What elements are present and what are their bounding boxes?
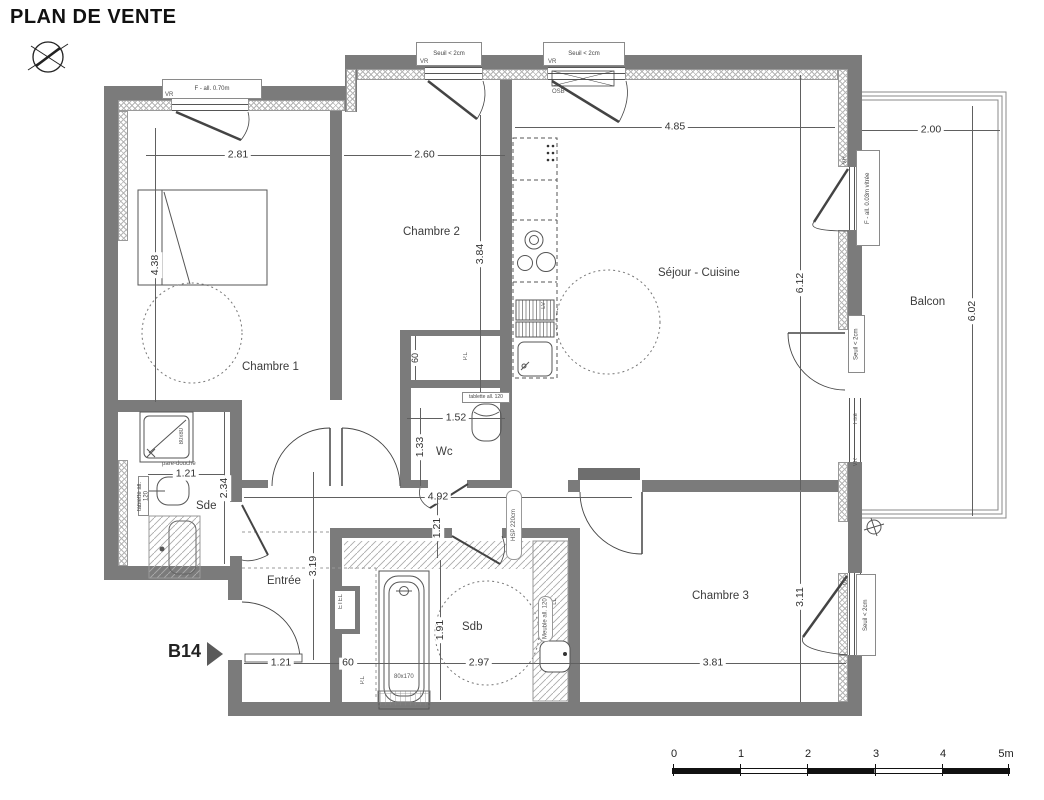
window-tag-vr: VR <box>843 577 849 585</box>
vanity-tag: Meuble all. 120 <box>538 596 553 642</box>
window-tag-vr: VR <box>548 59 556 65</box>
scale-tickmark <box>942 764 943 776</box>
kitchen-units <box>513 138 557 378</box>
window <box>172 98 248 111</box>
room-label-entree: Entrée <box>267 575 301 587</box>
window-tag: F - all. 0.03m vitrée <box>856 150 880 246</box>
dimension: 3.19 <box>313 472 314 660</box>
scale-bar: 0 1 2 3 4 5m <box>672 748 1017 782</box>
shelf-tag: tablette all. 120 <box>138 476 149 516</box>
closet-label: P.L <box>463 352 469 360</box>
dimension: 1.52 <box>407 418 505 419</box>
page-title: PLAN DE VENTE <box>10 6 177 29</box>
insulation-hatch <box>838 462 848 522</box>
dimension: 60 <box>415 336 416 380</box>
dimension: 3.84 <box>480 115 481 392</box>
dimension: 60 <box>318 663 378 664</box>
dimension: 2.34 <box>224 412 225 564</box>
room-label-sde: Sde <box>196 500 216 512</box>
dimension: 2.81 <box>146 155 330 156</box>
clearance-circle <box>142 283 242 383</box>
dimension: 3.81 <box>580 663 846 664</box>
wall <box>400 480 428 488</box>
scale-tickmark <box>740 764 741 776</box>
wall <box>848 655 862 716</box>
dimension: 4.85 <box>515 127 835 128</box>
wall <box>467 480 512 488</box>
window <box>548 67 625 80</box>
window-tag-fixe: Fixe <box>853 413 859 424</box>
dimension: 2.00 <box>862 130 1000 131</box>
dimension: 4.92 <box>244 497 632 498</box>
scale-tick: 4 <box>940 748 946 760</box>
toilet <box>149 477 189 505</box>
dishwasher-label: LV <box>541 302 547 309</box>
insulation-hatch <box>346 69 356 112</box>
room-label-chambre3: Chambre 3 <box>692 590 749 602</box>
dimension: 6.12 <box>800 75 801 490</box>
scale-tick: 1 <box>738 748 744 760</box>
insulation-hatch <box>357 69 425 80</box>
clearance-circle <box>435 581 539 685</box>
wall <box>228 660 242 704</box>
shower <box>140 412 193 462</box>
compass-icon <box>28 42 68 72</box>
dimension: 4.38 <box>155 128 156 402</box>
scale-tickmark <box>875 764 876 776</box>
wall <box>578 468 640 480</box>
room-label-sdb: Sdb <box>462 621 482 633</box>
room-label-sejour: Séjour - Cuisine <box>658 267 740 279</box>
ceiling-height-tag: HSP 220cm <box>506 490 522 560</box>
entrance-arrow-icon <box>207 642 223 666</box>
insulation-hatch <box>482 69 548 80</box>
scale-bar-segments <box>672 768 1010 774</box>
scale-tick: 5m <box>998 748 1013 760</box>
dimension: 2.97 <box>378 663 580 664</box>
wall <box>230 400 242 502</box>
dimension: 1.21 <box>148 474 224 475</box>
room-label-wc: Wc <box>436 446 453 458</box>
shelf-tag: tablette all. 120 <box>462 392 510 403</box>
wall <box>400 380 512 388</box>
bathtub <box>378 571 430 709</box>
bath-size-label: 80x170 <box>394 674 414 680</box>
wall <box>500 69 512 330</box>
wall <box>330 100 342 400</box>
clearance-circle <box>556 270 660 374</box>
room-label-balcon: Balcon <box>910 296 945 308</box>
shower-size-label: 80x80 <box>179 428 185 444</box>
room-label-chambre2: Chambre 2 <box>403 226 460 238</box>
dimension: 1.33 <box>420 408 421 486</box>
floor-plan: PLAN DE VENTE <box>0 0 1044 800</box>
wall <box>104 566 242 580</box>
dimension: 6.02 <box>972 106 973 516</box>
wall <box>568 528 580 702</box>
shower-screen-label: pare-douche <box>162 461 196 467</box>
survey-marker-icon <box>864 518 884 536</box>
insulation-hatch <box>118 111 128 241</box>
duct-etel <box>330 586 360 634</box>
dimension: 3.11 <box>800 492 801 702</box>
scale-tick: 2 <box>805 748 811 760</box>
wall <box>230 556 242 568</box>
door-tag: Seuil < 2cm <box>848 315 865 373</box>
duct-etel-label: ETEL <box>338 594 344 609</box>
window-tag-vr: VR <box>853 458 859 466</box>
insulation-hatch <box>118 460 128 566</box>
wall <box>104 400 242 412</box>
dimension: 1.91 <box>440 560 441 700</box>
scale-tickmark <box>807 764 808 776</box>
scale-tickmark <box>1008 764 1009 776</box>
scale-tickmark <box>673 764 674 776</box>
dimension: 1.21 <box>244 663 318 664</box>
toilet <box>472 404 501 441</box>
unit-code: B14 <box>168 641 201 662</box>
wall <box>642 480 848 492</box>
ceiling-drop-hatch <box>344 541 568 569</box>
insulation-hatch <box>838 69 848 167</box>
insulation-hatch <box>248 100 345 111</box>
window-tag: Seuil < 2cm <box>856 574 876 656</box>
wall <box>400 330 512 336</box>
scale-tick: 0 <box>671 748 677 760</box>
wall <box>104 86 118 580</box>
insulation-hatch <box>118 100 172 111</box>
window-tag-osb: OSB <box>552 89 565 95</box>
window-fixed <box>849 398 861 462</box>
window-tag-vr: VR <box>420 59 428 65</box>
scale-tick: 3 <box>873 748 879 760</box>
wall <box>848 462 862 573</box>
wall <box>500 330 512 488</box>
closet-label: P.L <box>360 676 366 684</box>
wall <box>242 480 268 488</box>
window <box>425 67 482 80</box>
wall <box>568 480 580 492</box>
wall <box>228 702 862 716</box>
dimension: 1.21 <box>437 497 438 558</box>
window-tag-vr: VR <box>165 92 173 98</box>
washbasin <box>540 641 570 672</box>
window-tag: F - all. 0.70m <box>162 79 262 99</box>
insulation-hatch <box>625 69 838 80</box>
window-tag-vr: VR <box>842 156 848 164</box>
insulation-hatch <box>838 230 848 330</box>
room-label-chambre1: Chambre 1 <box>242 361 299 373</box>
wall <box>228 566 242 600</box>
